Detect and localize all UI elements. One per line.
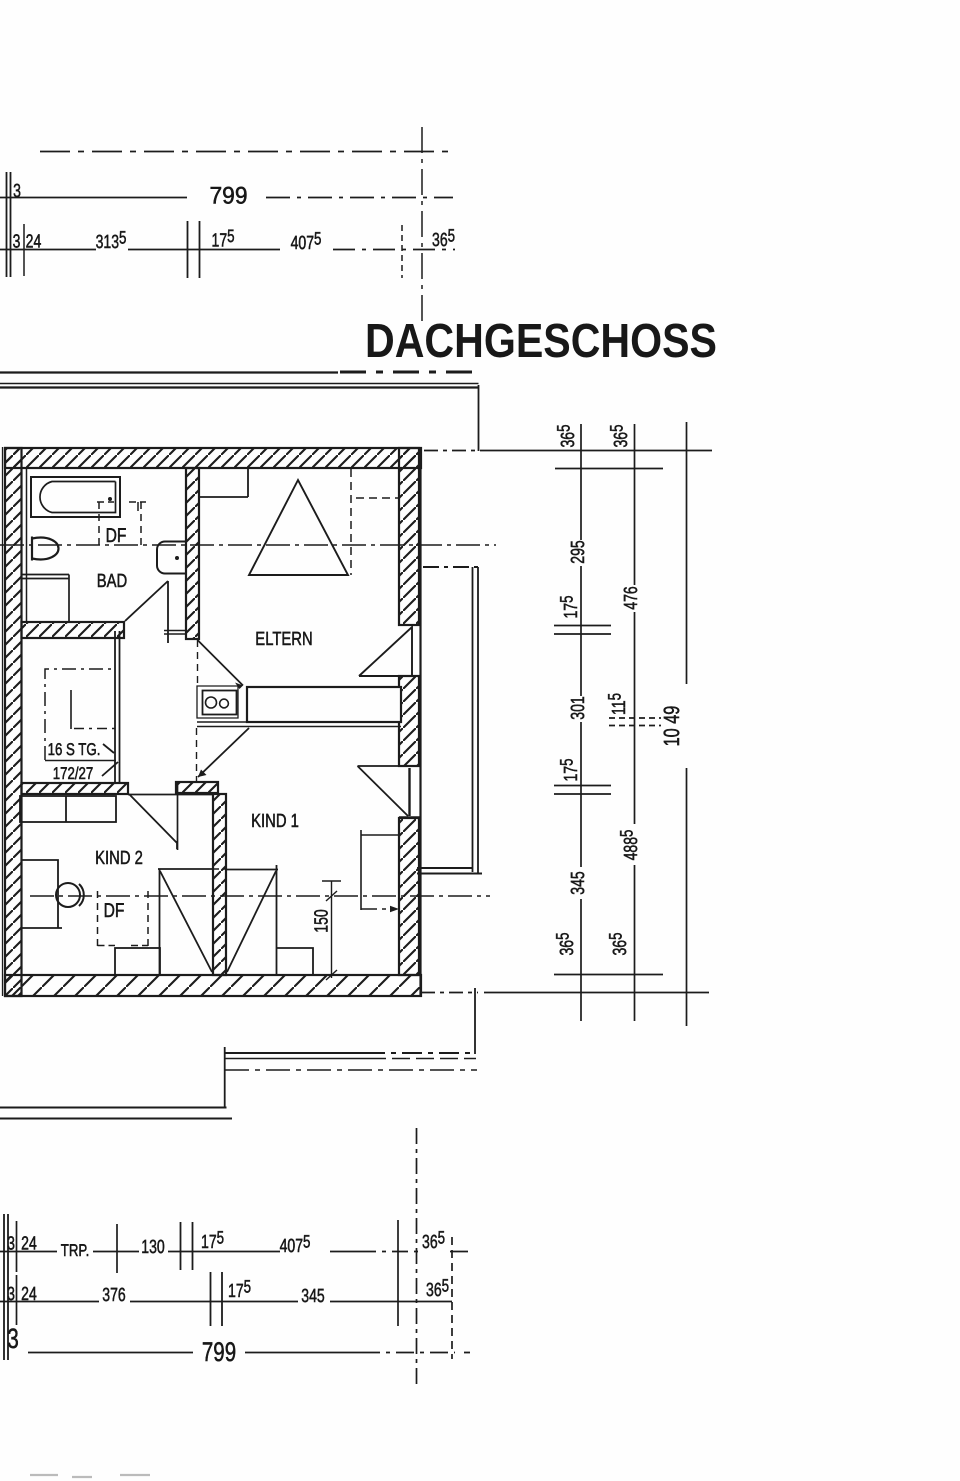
svg-text:3: 3	[13, 232, 21, 253]
svg-text:365: 365	[606, 932, 632, 955]
svg-text:DF: DF	[106, 525, 127, 547]
svg-text:130: 130	[141, 1237, 164, 1258]
svg-text:365: 365	[432, 226, 455, 252]
svg-text:376: 376	[102, 1285, 125, 1306]
svg-text:301: 301	[568, 696, 589, 719]
svg-text:KIND 2: KIND 2	[95, 848, 143, 869]
svg-text:3: 3	[7, 1323, 19, 1354]
svg-text:4075: 4075	[291, 229, 322, 255]
svg-text:3: 3	[7, 1234, 15, 1255]
svg-text:24: 24	[21, 1284, 37, 1305]
svg-text:24: 24	[26, 232, 42, 253]
svg-text:BAD: BAD	[97, 571, 127, 592]
svg-text:TRP.: TRP.	[61, 1241, 90, 1260]
svg-text:345: 345	[568, 871, 589, 894]
svg-text:10 49: 10 49	[659, 706, 684, 747]
svg-text:175: 175	[557, 758, 583, 781]
svg-text:365: 365	[553, 932, 579, 955]
svg-text:150: 150	[312, 909, 333, 932]
svg-text:DACHGESCHOSS: DACHGESCHOSS	[365, 315, 717, 368]
svg-text:175: 175	[212, 226, 235, 252]
svg-text:KIND 1: KIND 1	[251, 811, 299, 832]
svg-text:175: 175	[557, 595, 583, 618]
svg-text:172/27: 172/27	[53, 764, 94, 783]
svg-text:799: 799	[202, 1337, 236, 1367]
svg-text:4075: 4075	[280, 1232, 311, 1258]
svg-text:3: 3	[7, 1284, 15, 1305]
svg-text:365: 365	[426, 1276, 449, 1302]
svg-text:365: 365	[607, 424, 633, 447]
svg-text:DF: DF	[104, 900, 125, 922]
svg-text:295: 295	[568, 540, 589, 563]
svg-text:799: 799	[209, 183, 247, 210]
svg-text:3: 3	[13, 181, 21, 202]
svg-text:4885: 4885	[617, 830, 643, 861]
svg-text:175: 175	[201, 1228, 224, 1254]
svg-text:ELTERN: ELTERN	[255, 629, 312, 650]
svg-text:24: 24	[21, 1234, 37, 1255]
svg-text:175: 175	[228, 1277, 251, 1303]
svg-text:3135: 3135	[96, 228, 127, 254]
svg-text:365: 365	[422, 1228, 445, 1254]
svg-text:345: 345	[301, 1286, 324, 1307]
svg-text:365: 365	[554, 424, 580, 447]
svg-text:16 S TG.: 16 S TG.	[48, 740, 101, 759]
svg-text:115: 115	[605, 693, 631, 715]
svg-text:476: 476	[621, 586, 642, 609]
